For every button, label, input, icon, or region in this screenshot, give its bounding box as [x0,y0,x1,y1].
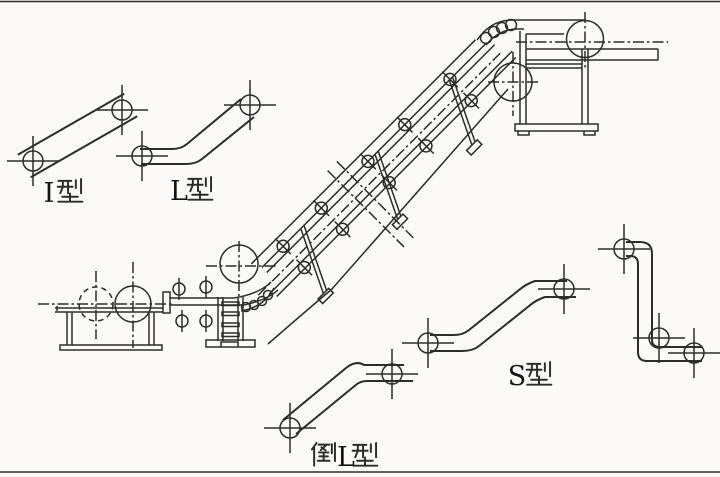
i-type-label: I [44,178,83,209]
i-type-belt-band [18,94,137,178]
kanji-xing-glyph [353,443,378,466]
chain-roller [200,310,212,332]
ladder-rungs [222,302,239,337]
incline-centerline [258,53,500,295]
schematic-pulley [264,403,316,453]
incline-section [231,19,556,344]
kanji-dao-glyph [312,443,335,466]
support-table-frame [55,306,163,345]
i-type-label-latin: I [44,178,55,209]
trough-flange [163,292,170,313]
s-type-label-latin: S [508,361,527,392]
schematic-pulley [366,349,418,399]
chain-roller [176,310,188,332]
schematic-pulley [633,313,685,363]
vertical-z-schematic [598,224,720,378]
boot-centerlines [38,262,172,348]
l-type-belt-band [140,99,254,164]
chain-roller [173,278,185,300]
i-type-schematic: I [7,85,148,209]
ladder-base [206,340,255,347]
chain-roller [200,276,212,298]
scanned-diagram-page: I L L S [0,0,720,477]
schematic-pulley [668,328,720,378]
schematic-pulley [96,85,148,135]
kanji-xing-glyph [188,177,213,200]
l-type-schematic: L [116,80,276,207]
schematic-pulley [402,318,454,368]
kanji-xing-glyph [58,179,83,202]
inverted-l-type-label: L [312,442,377,473]
s-type-label: S [508,361,552,392]
s-type-schematic: S [402,264,590,392]
schematic-pulley [538,264,590,314]
head-frame-base [515,124,598,135]
kanji-xing-glyph [527,362,552,385]
head-chain-links [481,20,517,44]
head-section [477,12,668,135]
main-conveyor-assembly [38,12,668,350]
schematic-pulley [224,80,276,130]
head-frame-and-discharge-chute [520,31,658,124]
inverted-l-type-schematic: L [264,349,418,473]
table-base-plate [60,345,162,350]
schematic-pulley [116,131,168,181]
cross-tie-struts [274,77,501,304]
boot-section [38,241,278,350]
l-type-label-latin: L [170,176,188,207]
conveyor-types-engineering-diagram: I L L S [0,0,720,477]
inverted-l-type-label-latin: L [337,442,355,473]
l-type-label: L [170,176,212,207]
incline-casing-lines [245,27,517,299]
schematic-pulley [598,224,650,274]
